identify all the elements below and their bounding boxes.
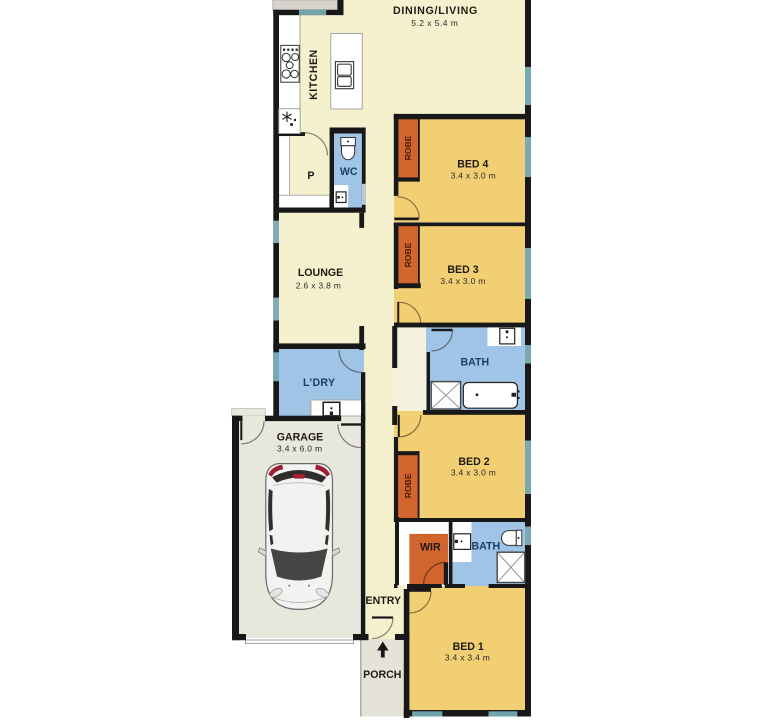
svg-text:L’DRY: L’DRY: [303, 377, 335, 389]
svg-text:ROBE: ROBE: [403, 242, 413, 267]
svg-text:WC: WC: [340, 166, 358, 178]
svg-text:BED 2: BED 2: [458, 456, 489, 468]
svg-text:2.6 x 3.8 m: 2.6 x 3.8 m: [296, 280, 341, 290]
svg-text:DINING/LIVING: DINING/LIVING: [393, 5, 478, 17]
svg-text:LOUNGE: LOUNGE: [298, 267, 343, 279]
svg-text:BATH: BATH: [471, 541, 500, 553]
svg-text:3.4 x 6.0 m: 3.4 x 6.0 m: [277, 444, 322, 454]
svg-text:GARAGE: GARAGE: [277, 432, 324, 444]
svg-text:3.4 x 3.4 m: 3.4 x 3.4 m: [445, 653, 490, 663]
svg-text:ROBE: ROBE: [403, 135, 413, 160]
svg-text:PORCH: PORCH: [363, 669, 401, 681]
svg-text:BED 3: BED 3: [447, 264, 478, 276]
svg-text:3.4 x 3.0 m: 3.4 x 3.0 m: [440, 276, 485, 286]
svg-text:BED 4: BED 4: [457, 158, 488, 170]
svg-text:5.2 x 5.4 m: 5.2 x 5.4 m: [411, 18, 458, 28]
svg-text:ROBE: ROBE: [403, 473, 413, 498]
svg-text:ENTRY: ENTRY: [366, 595, 402, 607]
svg-text:BATH: BATH: [460, 357, 489, 369]
svg-text:WIR: WIR: [420, 542, 441, 554]
svg-text:KITCHEN: KITCHEN: [308, 49, 320, 100]
svg-text:3.4 x 3.0 m: 3.4 x 3.0 m: [451, 171, 496, 181]
svg-text:BED 1: BED 1: [453, 641, 484, 653]
svg-text:3.4 x 3.0 m: 3.4 x 3.0 m: [451, 467, 496, 477]
svg-text:P: P: [307, 170, 314, 182]
